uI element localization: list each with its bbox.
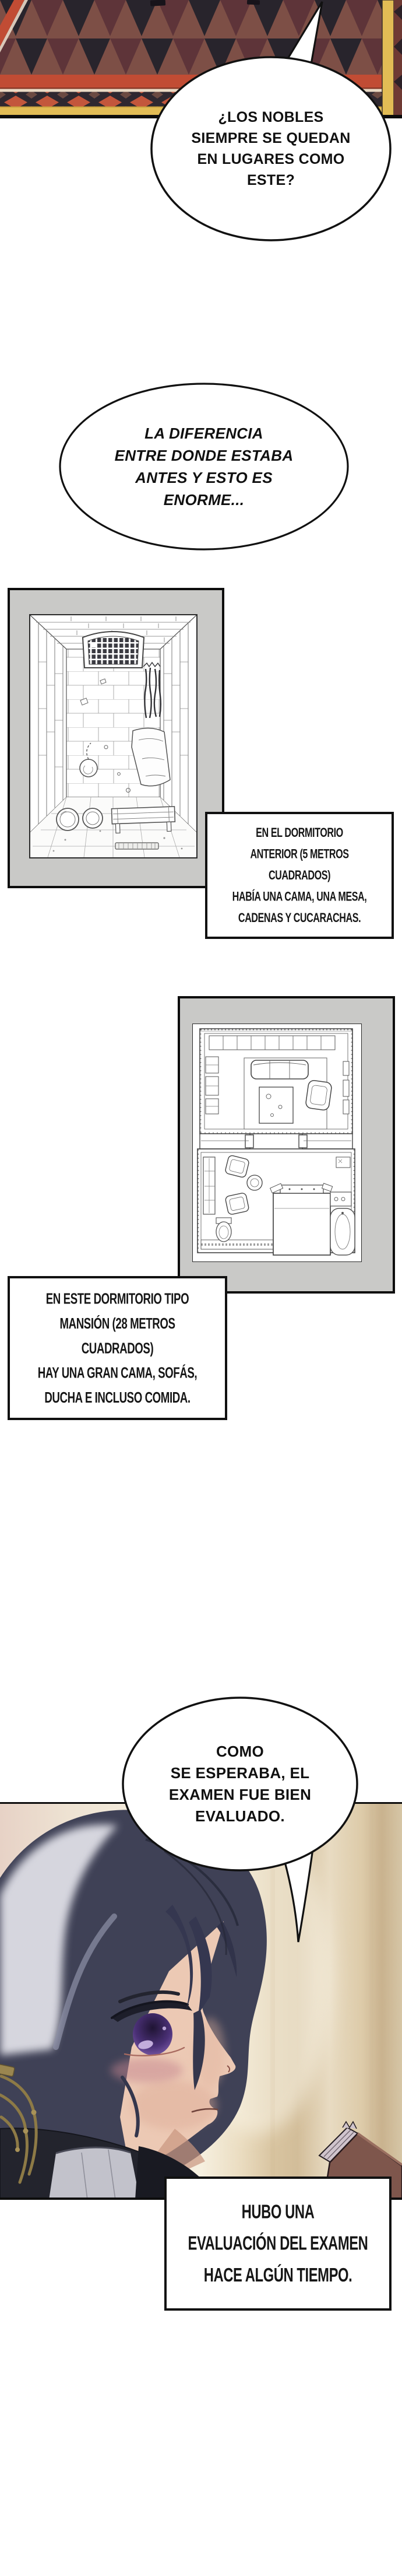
washstand bbox=[330, 1192, 351, 1206]
speech-line: ESTE? bbox=[247, 170, 295, 191]
speech-line: ENORME... bbox=[164, 489, 245, 511]
roof-object bbox=[150, 0, 165, 6]
speech-text: COMO SE ESPERABA, EL EXAMEN FUE BIEN EVA… bbox=[121, 1696, 359, 1872]
speech-line: EXAMEN FUE BIEN bbox=[169, 1784, 311, 1806]
caption-line: EN EL DORMITORIO bbox=[221, 822, 378, 844]
speech-line: SIEMPRE SE QUEDAN bbox=[191, 128, 350, 149]
mansion-floorplan-drawing bbox=[193, 1024, 360, 1260]
old-dormitory-drawing bbox=[30, 615, 196, 857]
large-bed bbox=[273, 1193, 330, 1255]
toilet bbox=[216, 1218, 231, 1242]
caption-text: HUBO UNA EVALUACIÓN DEL EXAMEN HACE ALGÚ… bbox=[184, 2196, 373, 2291]
caption-line: HABÍA UNA CAMA, UNA MESA, bbox=[221, 886, 378, 907]
speech-line: LA DIFERENCIA bbox=[144, 422, 263, 444]
caption-line: MANSIÓN (28 METROS CUADRADOS) bbox=[26, 1311, 209, 1361]
caption-line: HUBO UNA bbox=[184, 2196, 373, 2228]
pot bbox=[83, 808, 103, 828]
caption-line: DUCHA E INCLUSO COMIDA. bbox=[26, 1385, 209, 1410]
side-table bbox=[247, 1175, 262, 1190]
speech-bubble-examen: COMO SE ESPERABA, EL EXAMEN FUE BIEN EVA… bbox=[121, 1696, 359, 1872]
floor-drain bbox=[115, 843, 158, 849]
caption-line: EN ESTE DORMITORIO TIPO bbox=[26, 1286, 209, 1310]
caption-line: ANTERIOR (5 METROS CUADRADOS) bbox=[221, 843, 378, 886]
caption-line: HAY UNA GRAN CAMA, SOFÁS, bbox=[26, 1361, 209, 1385]
panel-mansion-dormitory bbox=[178, 996, 395, 1294]
speech-line: ANTES Y ESTO ES bbox=[135, 467, 273, 489]
caption-line: EVALUACIÓN DEL EXAMEN bbox=[184, 2228, 373, 2259]
speech-line: ¿LOS NOBLES bbox=[218, 107, 323, 128]
sofa bbox=[251, 1060, 308, 1079]
speech-text: ¿LOS NOBLES SIEMPRE SE QUEDAN EN LUGARES… bbox=[150, 55, 392, 242]
speech-bubble-diferencia: LA DIFERENCIA ENTRE DONDE ESTABA ANTES Y… bbox=[58, 382, 350, 551]
speech-line: EN LUGARES COMO bbox=[197, 149, 344, 170]
caption-old-dormitory: EN EL DORMITORIO ANTERIOR (5 METROS CUAD… bbox=[205, 812, 394, 939]
shirt-collar bbox=[49, 2147, 140, 2200]
caption-line: HACE ALGÚN TIEMPO. bbox=[184, 2259, 373, 2291]
caption-evaluacion: HUBO UNA EVALUACIÓN DEL EXAMEN HACE ALGÚ… bbox=[164, 2177, 392, 2311]
caption-line: CADENAS Y CUCARACHAS. bbox=[221, 907, 378, 929]
speech-line: ENTRE DONDE ESTABA bbox=[115, 444, 294, 467]
speech-line: COMO bbox=[216, 1741, 264, 1762]
speech-line: EVALUADO. bbox=[195, 1806, 285, 1827]
caption-mansion-dormitory: EN ESTE DORMITORIO TIPO MANSIÓN (28 METR… bbox=[8, 1276, 227, 1420]
speech-text: LA DIFERENCIA ENTRE DONDE ESTABA ANTES Y… bbox=[58, 382, 350, 551]
webtoon-page: ¿LOS NOBLES SIEMPRE SE QUEDAN EN LUGARES… bbox=[0, 0, 402, 2576]
speech-line: SE ESPERABA, EL bbox=[171, 1762, 310, 1784]
roof-object bbox=[247, 0, 260, 5]
caption-text: EN ESTE DORMITORIO TIPO MANSIÓN (28 METR… bbox=[26, 1286, 209, 1410]
caption-text: EN EL DORMITORIO ANTERIOR (5 METROS CUAD… bbox=[221, 822, 378, 929]
panel-old-dormitory bbox=[8, 588, 224, 888]
armchair bbox=[305, 1080, 332, 1110]
bathtub bbox=[330, 1208, 355, 1255]
coffee-table bbox=[259, 1087, 293, 1123]
speech-bubble-nobles: ¿LOS NOBLES SIEMPRE SE QUEDAN EN LUGARES… bbox=[150, 55, 392, 242]
panel-old-dormitory-frame bbox=[29, 614, 198, 858]
panel-mansion-frame bbox=[192, 1024, 362, 1262]
armchair bbox=[225, 1193, 249, 1215]
armchair bbox=[225, 1155, 250, 1178]
